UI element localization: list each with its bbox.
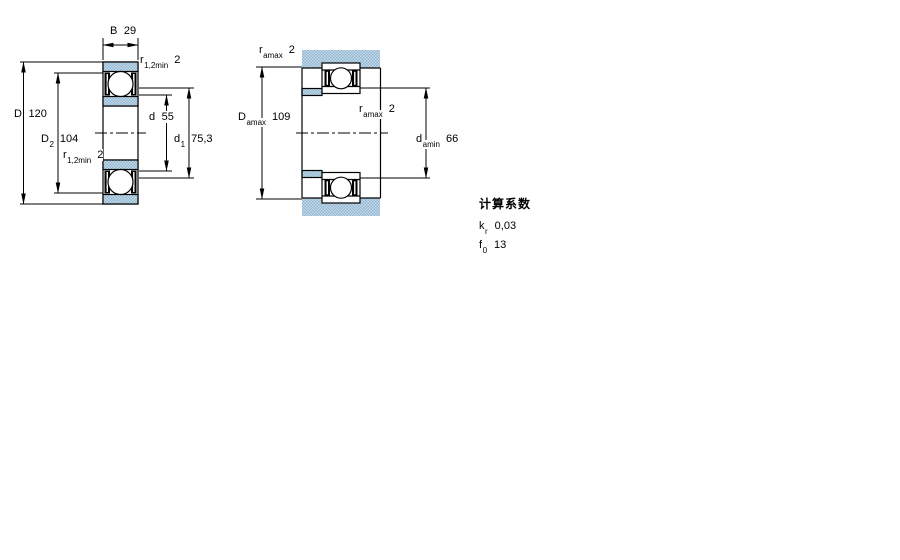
factor-kr: kr0,03 — [479, 220, 531, 236]
dim-label-outer-diameter-D: D120 — [14, 108, 47, 122]
left-view-bottom-half — [103, 160, 138, 204]
shaft-shoulder-top — [302, 89, 322, 96]
dim-label-ramax-middle: ramax2 — [359, 103, 395, 117]
seal-left — [325, 71, 331, 87]
ball — [108, 72, 133, 97]
inner-ring-section — [103, 97, 138, 107]
inner-ring-section — [103, 160, 138, 170]
calculation-factors: 计算系数 kr0,03 f013 — [479, 195, 531, 258]
ball — [108, 170, 133, 195]
shaft-shoulder-bottom — [302, 171, 322, 178]
dim-label-D2: D2104 — [41, 133, 78, 147]
seal-right — [352, 180, 358, 196]
ball — [331, 177, 352, 198]
dim-label-r12min-bottom: r1,2min2 — [63, 149, 103, 163]
dim-label-bore-diameter-d: d55 — [149, 111, 174, 125]
outer-ring-section — [103, 195, 138, 205]
factor-f0: f013 — [479, 239, 531, 255]
dim-label-d1: d175,3 — [174, 133, 213, 147]
dim-label-damin: damin66 — [416, 133, 458, 147]
dim-label-ramax-top: ramax2 — [259, 44, 295, 58]
bearing-dimension-drawing: B29 r1,2min2 D120 D2104 r1,2min2 d55 d17… — [0, 0, 900, 560]
right-view-bearing-bottom — [322, 173, 360, 204]
left-view-bearing-section — [95, 62, 146, 204]
factors-title: 计算系数 — [479, 195, 531, 212]
outer-ring-section — [103, 62, 138, 72]
dim-label-width-B: B29 — [110, 25, 136, 39]
left-view-top-half — [103, 62, 138, 106]
right-view-arrangement — [296, 50, 430, 216]
seal-left — [325, 180, 331, 196]
ball — [331, 68, 352, 89]
seal-right — [352, 71, 358, 87]
right-view-bearing-top — [322, 63, 360, 94]
dim-label-Damax: Damax109 — [238, 111, 290, 125]
dim-label-r12min-top: r1,2min2 — [140, 54, 180, 68]
drawing-linework — [0, 0, 900, 560]
